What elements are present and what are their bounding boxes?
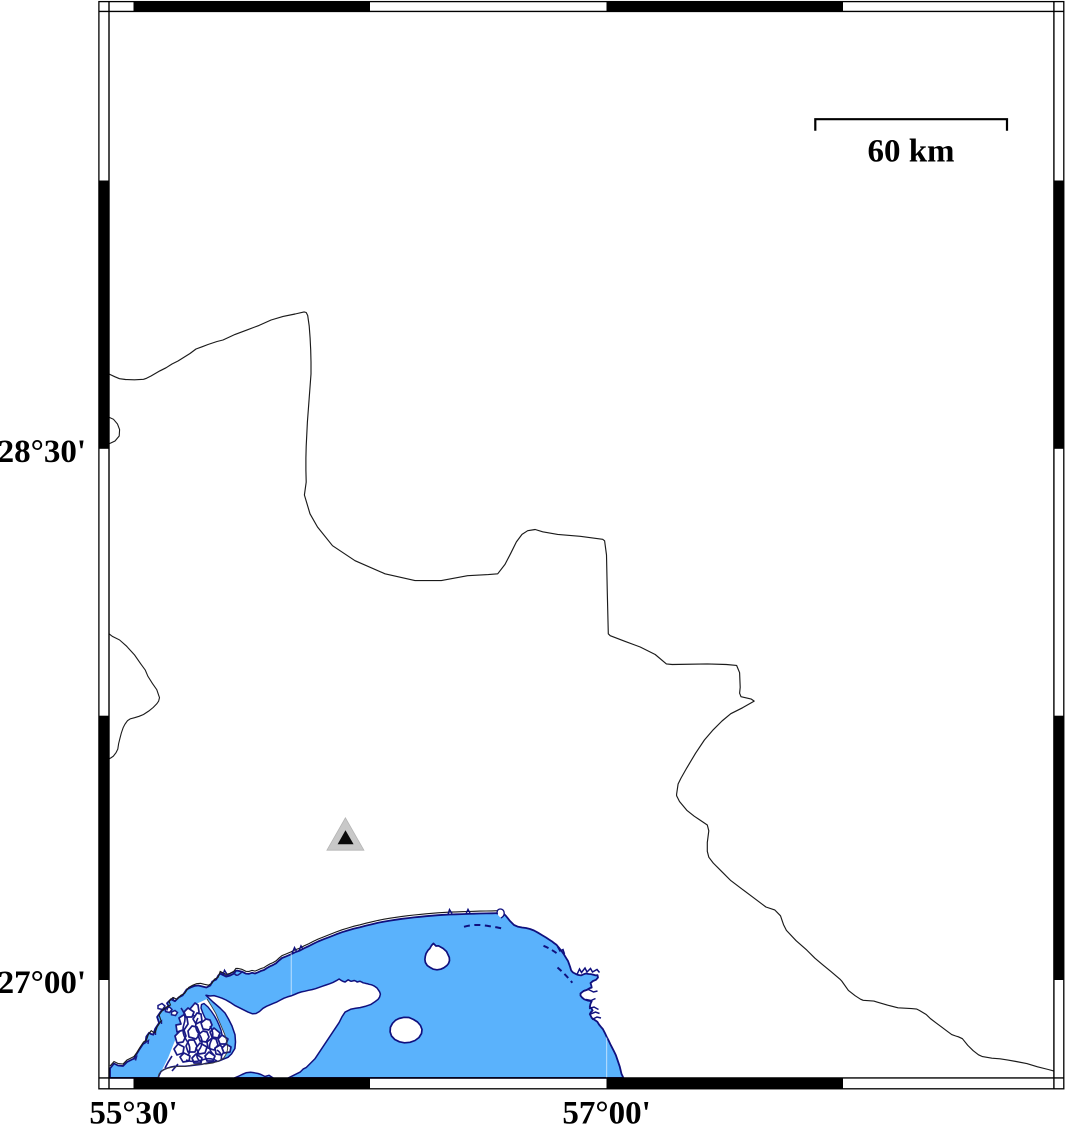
svg-text:28°30': 28°30' bbox=[0, 434, 86, 470]
svg-text:57°00': 57°00' bbox=[562, 1096, 650, 1127]
svg-text:60 km: 60 km bbox=[867, 134, 954, 170]
svg-text:27°00': 27°00' bbox=[0, 965, 86, 1001]
svg-text:55°30': 55°30' bbox=[89, 1096, 177, 1127]
